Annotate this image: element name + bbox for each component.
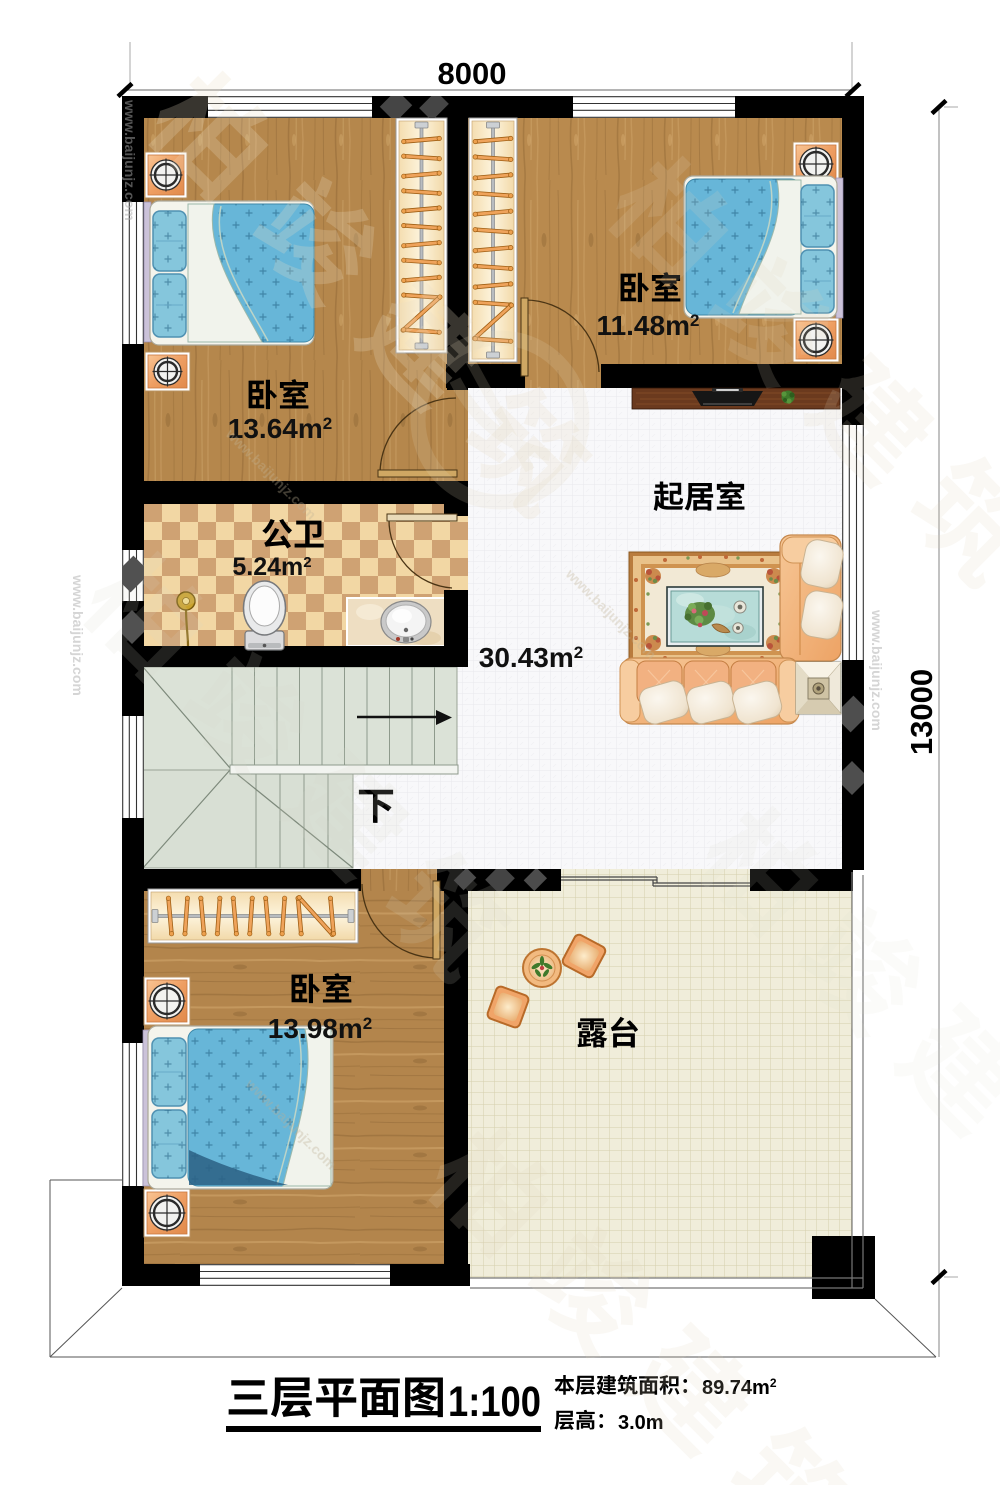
svg-text:13000: 13000 (904, 669, 939, 755)
svg-text:11.48m2: 11.48m2 (597, 310, 700, 341)
svg-text:13.98m2: 13.98m2 (268, 1013, 372, 1044)
svg-text:8000: 8000 (438, 56, 507, 91)
svg-text:1:100: 1:100 (448, 1378, 541, 1426)
svg-text:5.24m2: 5.24m2 (232, 553, 311, 581)
svg-text:30.43m2: 30.43m2 (479, 642, 583, 673)
svg-text:www.baijunjz.com: www.baijunjz.com (122, 99, 138, 221)
svg-text:www.baijunjz.com: www.baijunjz.com (869, 609, 885, 731)
svg-text:www.baijunjz.com: www.baijunjz.com (70, 574, 86, 696)
